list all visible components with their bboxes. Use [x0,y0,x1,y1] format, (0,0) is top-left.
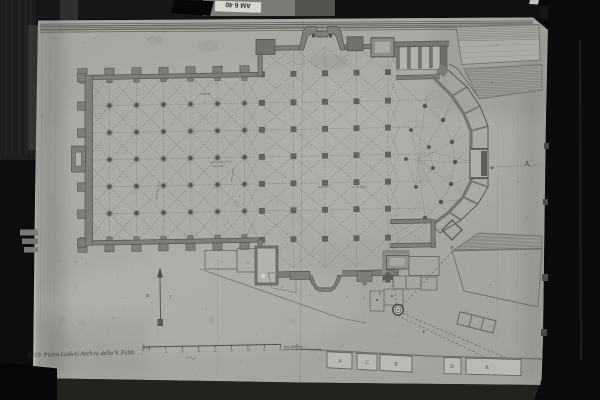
svg-text:Bra. Milanesi: Bra. Milanesi [284,345,303,349]
svg-text:7: 7 [489,283,491,287]
svg-text:su. da oglio: su. da oglio [352,184,367,189]
svg-text:D: D [450,365,454,370]
svg-text:Coperto: Coperto [200,91,212,96]
svg-text:E: E [378,291,382,296]
svg-text:A: A [338,360,342,365]
svg-text:A: A [524,159,530,168]
svg-text:lung. antica: lung. antica [212,165,225,168]
svg-text:E: E [422,329,426,334]
svg-text:T: T [169,295,172,300]
svg-text:6: 6 [491,81,493,85]
svg-text:AM 6 40: AM 6 40 [225,1,251,9]
svg-text:Coperto: Coperto [318,184,329,189]
svg-text:B: B [146,293,149,298]
svg-text:5: 5 [496,43,498,47]
